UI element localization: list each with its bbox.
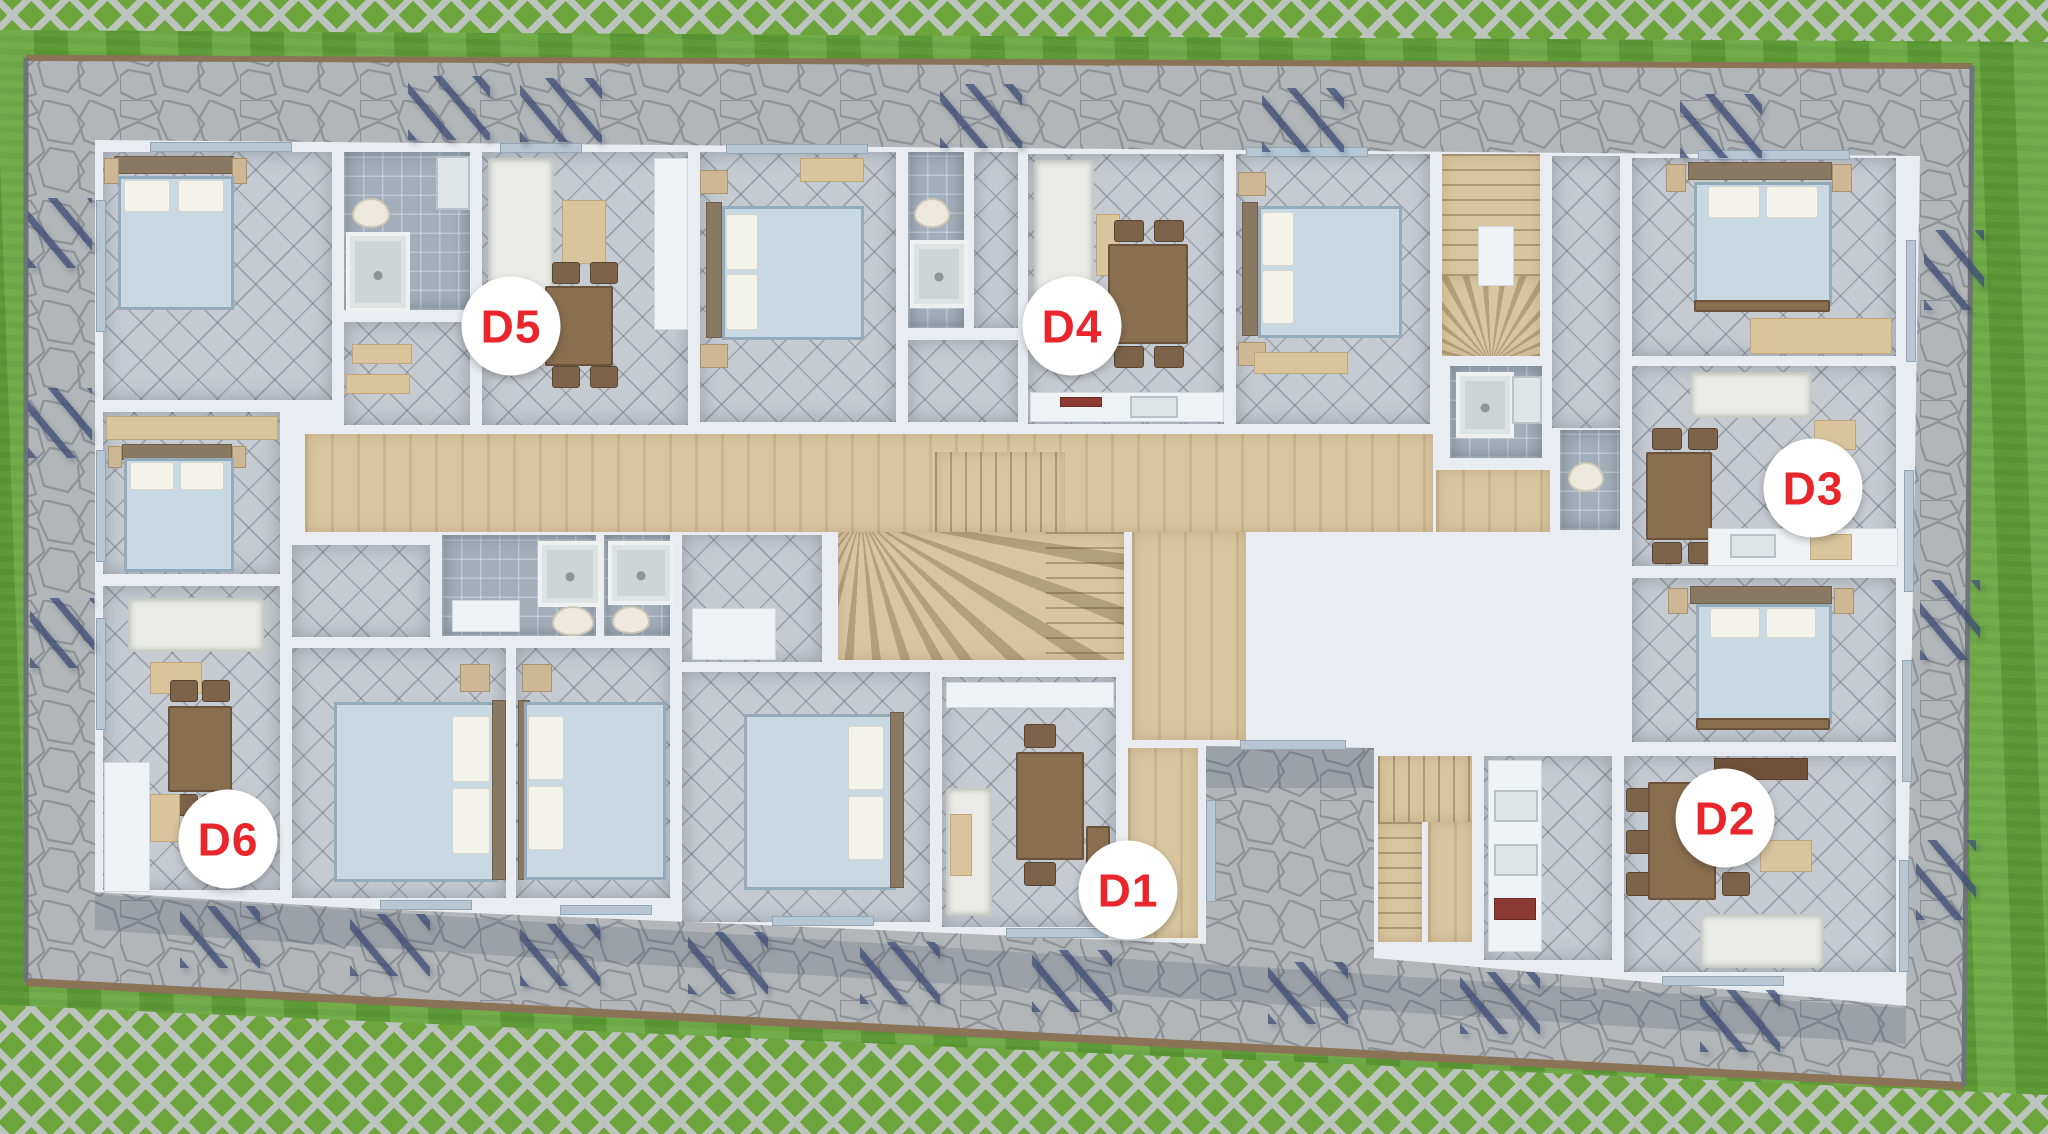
dining-chair bbox=[1114, 220, 1144, 242]
awning-shadow bbox=[1924, 230, 1984, 310]
pillow bbox=[1766, 186, 1818, 218]
upper-staircase-flight bbox=[935, 452, 1065, 532]
awning-shadow bbox=[1268, 962, 1348, 1024]
dining-chair bbox=[1652, 542, 1682, 564]
stove bbox=[1060, 397, 1102, 407]
window bbox=[1904, 470, 1914, 592]
window bbox=[1902, 660, 1912, 782]
window bbox=[380, 900, 472, 910]
nightstand bbox=[108, 446, 122, 468]
patio-door bbox=[1240, 740, 1346, 750]
unit-label-d2[interactable]: D2 bbox=[1676, 769, 1775, 868]
window bbox=[96, 200, 106, 332]
nightstand bbox=[700, 170, 728, 194]
awning-shadow bbox=[350, 914, 430, 976]
bed-headboard bbox=[890, 712, 904, 888]
pillow bbox=[528, 786, 564, 850]
central-staircase-flight bbox=[1046, 532, 1124, 660]
pillow bbox=[180, 462, 224, 490]
dining-chair bbox=[170, 680, 198, 702]
coffee-table bbox=[562, 200, 606, 264]
dining-chair bbox=[1154, 220, 1184, 242]
dining-chair bbox=[1024, 862, 1056, 886]
dining-chair bbox=[1652, 428, 1682, 450]
window bbox=[560, 905, 652, 915]
pillow bbox=[726, 274, 758, 330]
room-hall-top-right bbox=[1552, 156, 1620, 428]
dining-chair bbox=[552, 262, 580, 284]
door-mat bbox=[352, 344, 412, 364]
unit-label-d3[interactable]: D3 bbox=[1764, 439, 1863, 538]
dining-chair bbox=[1024, 724, 1056, 748]
toilet bbox=[914, 198, 950, 228]
window bbox=[726, 144, 868, 154]
bed-headboard bbox=[1688, 162, 1832, 180]
window bbox=[500, 143, 582, 153]
dining-chair bbox=[552, 366, 580, 388]
bed-footboard bbox=[1694, 300, 1830, 312]
shower bbox=[1456, 372, 1514, 438]
window bbox=[96, 618, 106, 730]
dining-chair bbox=[1114, 346, 1144, 368]
unit-label-d5[interactable]: D5 bbox=[462, 277, 561, 376]
bed-headboard bbox=[706, 202, 722, 338]
side-table bbox=[1760, 840, 1812, 872]
window bbox=[772, 916, 874, 926]
awning-shadow bbox=[1680, 94, 1762, 158]
pillow bbox=[1262, 212, 1294, 266]
dining-chair bbox=[590, 262, 618, 284]
window bbox=[150, 142, 292, 152]
courtyard-shadow bbox=[1206, 746, 1374, 788]
nightstand bbox=[1832, 164, 1852, 192]
nightstand bbox=[1666, 164, 1686, 192]
unit-label-d4[interactable]: D4 bbox=[1023, 277, 1122, 376]
unit-label-text: D3 bbox=[1783, 461, 1844, 515]
room-d4-hall bbox=[974, 152, 1018, 328]
bed-headboard bbox=[114, 156, 234, 174]
awning-shadow bbox=[688, 932, 768, 994]
unit-label-text: D5 bbox=[481, 299, 542, 353]
pillow bbox=[124, 180, 170, 212]
nightstand bbox=[1668, 588, 1688, 614]
shelf bbox=[950, 814, 972, 876]
nightstand bbox=[460, 664, 490, 692]
counter-item bbox=[1810, 534, 1852, 560]
toilet bbox=[552, 606, 594, 636]
awning-shadow bbox=[520, 78, 602, 142]
nightstand bbox=[232, 446, 246, 468]
pillow bbox=[1766, 608, 1816, 638]
shower bbox=[538, 541, 602, 607]
kitchen-sink bbox=[1130, 396, 1178, 418]
toilet bbox=[1568, 462, 1604, 492]
toilet bbox=[352, 198, 390, 228]
bathroom-sink bbox=[1512, 376, 1542, 424]
dining-table bbox=[1016, 752, 1084, 860]
sideboard bbox=[150, 794, 180, 842]
awning-shadow bbox=[1460, 972, 1540, 1034]
awning-shadow bbox=[28, 198, 92, 268]
dining-chair bbox=[1154, 346, 1184, 368]
passage-mid-right bbox=[1436, 470, 1550, 532]
bathroom-vanity bbox=[452, 600, 520, 632]
window bbox=[96, 450, 106, 562]
sofa bbox=[1690, 372, 1812, 418]
nightstand bbox=[700, 344, 728, 368]
window bbox=[1006, 928, 1108, 938]
awning-shadow bbox=[180, 906, 260, 968]
bed-headboard bbox=[492, 700, 506, 880]
sofa bbox=[1700, 914, 1824, 968]
kitchen-counter bbox=[654, 158, 688, 330]
awning-shadow bbox=[520, 924, 600, 986]
awning-shadow bbox=[1032, 950, 1112, 1012]
staircase-top-right-turn bbox=[1442, 276, 1540, 356]
unit-label-text: D6 bbox=[198, 812, 259, 866]
awning-shadow bbox=[30, 598, 94, 668]
pillow bbox=[848, 726, 884, 790]
corridor bbox=[305, 434, 1433, 532]
pillow bbox=[528, 716, 564, 780]
corridor-vertical bbox=[1132, 532, 1246, 740]
staircase-bottom-right-landing bbox=[1428, 822, 1472, 942]
sofa bbox=[128, 598, 264, 652]
floor-plan-render: D1 D2 D3 D4 D5 D6 bbox=[0, 0, 2048, 1134]
pillow bbox=[1710, 608, 1760, 638]
dresser bbox=[800, 158, 864, 182]
dining-chair bbox=[1688, 428, 1718, 450]
dining-chair bbox=[1722, 872, 1750, 896]
kitchen-appliance bbox=[1494, 844, 1538, 876]
staircase-bottom-right bbox=[1378, 756, 1472, 822]
staircase-core bbox=[1478, 226, 1514, 286]
nightstand bbox=[1834, 588, 1854, 614]
window bbox=[1906, 240, 1916, 362]
shower bbox=[608, 541, 674, 605]
awning-shadow bbox=[28, 388, 92, 458]
awning-shadow bbox=[1700, 990, 1780, 1052]
shower bbox=[910, 240, 968, 308]
nightstand bbox=[104, 158, 119, 184]
kitchen-counter bbox=[104, 762, 150, 892]
door-mat bbox=[346, 374, 410, 394]
pillow bbox=[848, 796, 884, 860]
room-hall-a bbox=[292, 545, 430, 637]
pillow bbox=[726, 214, 758, 270]
shower bbox=[346, 232, 410, 312]
unit-label-text: D2 bbox=[1695, 791, 1756, 845]
staircase-bottom-right-flight bbox=[1378, 822, 1422, 942]
pillow bbox=[452, 716, 490, 782]
toilet bbox=[612, 606, 650, 634]
unit-label-d1[interactable]: D1 bbox=[1079, 841, 1178, 940]
pillow bbox=[452, 788, 490, 854]
awning-shadow bbox=[940, 84, 1022, 148]
kitchen-counter bbox=[946, 682, 1114, 708]
awning-shadow bbox=[860, 942, 940, 1004]
pillow bbox=[1262, 270, 1294, 324]
nightstand bbox=[522, 664, 552, 692]
nightstand bbox=[232, 158, 247, 184]
awning-shadow bbox=[1262, 88, 1344, 152]
unit-label-text: D1 bbox=[1098, 863, 1159, 917]
dresser bbox=[1750, 318, 1892, 354]
bed-headboard bbox=[1690, 586, 1832, 604]
pillow bbox=[1708, 186, 1760, 218]
dining-chair bbox=[590, 366, 618, 388]
bench bbox=[1254, 352, 1348, 374]
awning-shadow bbox=[1920, 580, 1980, 660]
nightstand bbox=[1238, 172, 1266, 196]
dining-table bbox=[168, 706, 232, 792]
kitchen-sink bbox=[1730, 534, 1776, 558]
awning-shadow bbox=[408, 76, 490, 140]
closet bbox=[692, 608, 776, 660]
kitchen-counter bbox=[106, 416, 278, 440]
pillow bbox=[178, 180, 224, 212]
unit-label-d6[interactable]: D6 bbox=[179, 790, 278, 889]
bed-headboard bbox=[1242, 202, 1258, 336]
unit-label-text: D4 bbox=[1042, 299, 1103, 353]
bed-footboard bbox=[1696, 718, 1830, 730]
dining-table bbox=[1646, 452, 1712, 540]
window bbox=[1899, 860, 1909, 972]
awning-shadow bbox=[1916, 840, 1976, 920]
room-d4-hall2 bbox=[908, 340, 1018, 422]
window bbox=[1662, 976, 1784, 986]
pillow bbox=[130, 462, 174, 490]
oven bbox=[1494, 898, 1536, 920]
window bbox=[1206, 800, 1216, 902]
bathroom-sink bbox=[436, 156, 470, 210]
dining-chair bbox=[202, 680, 230, 702]
kitchen-appliance bbox=[1494, 790, 1538, 822]
